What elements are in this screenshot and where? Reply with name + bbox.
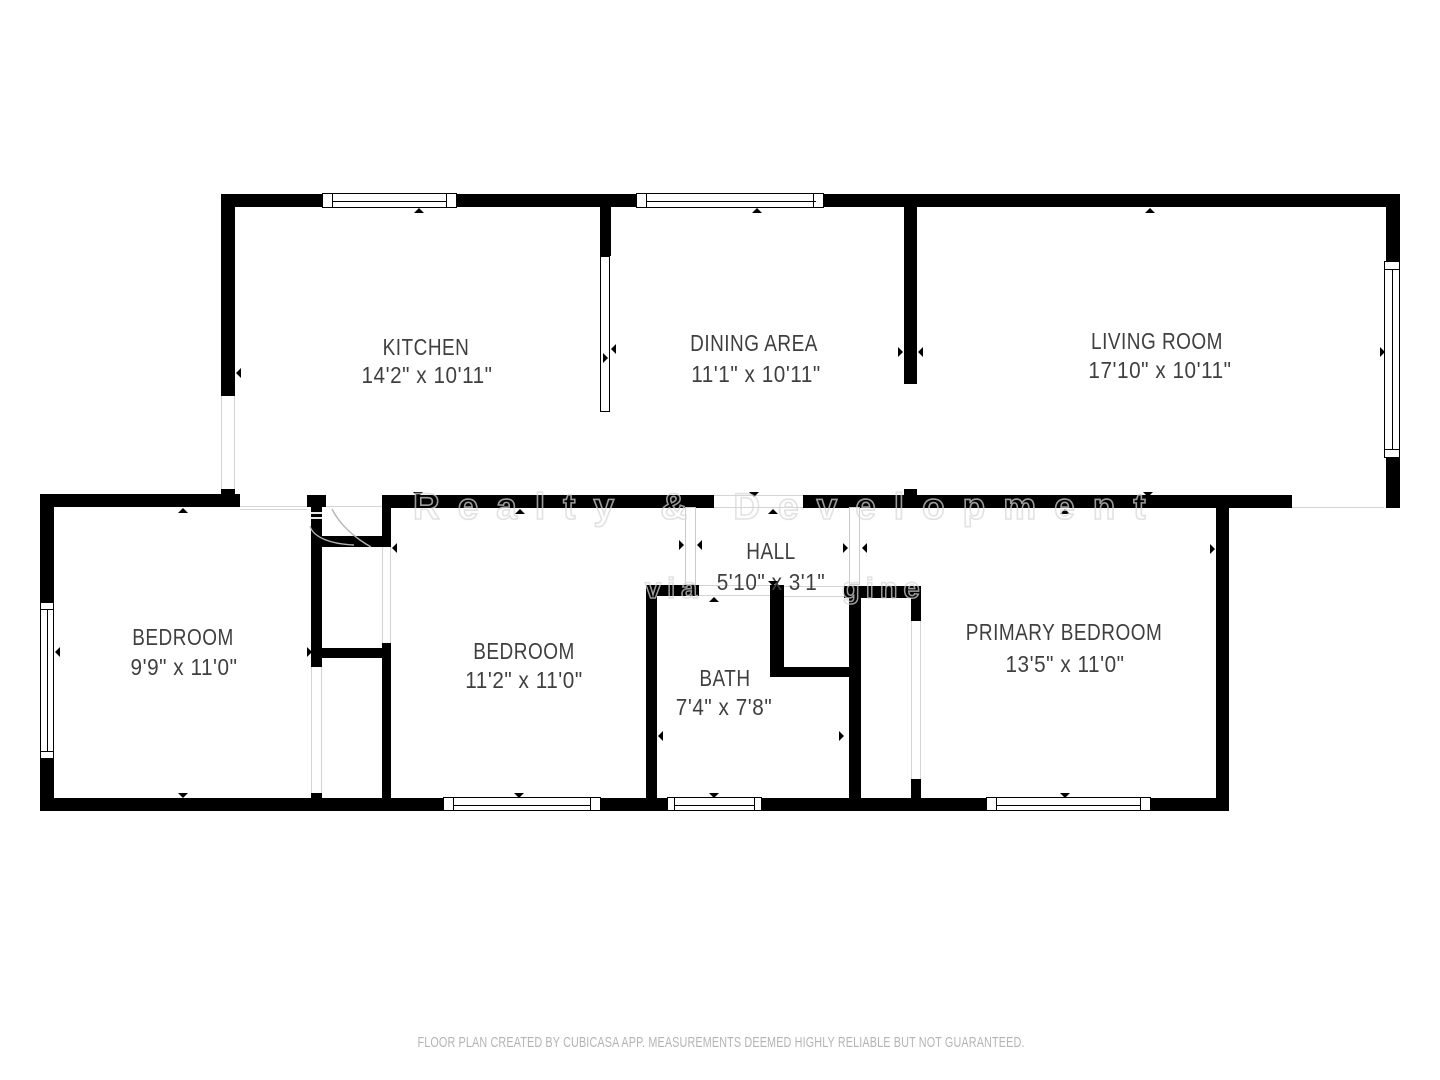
- svg-text:gine: gine: [842, 573, 926, 605]
- svg-text:Realty & Development: Realty & Development: [413, 486, 1164, 527]
- svg-text:via: via: [645, 573, 703, 605]
